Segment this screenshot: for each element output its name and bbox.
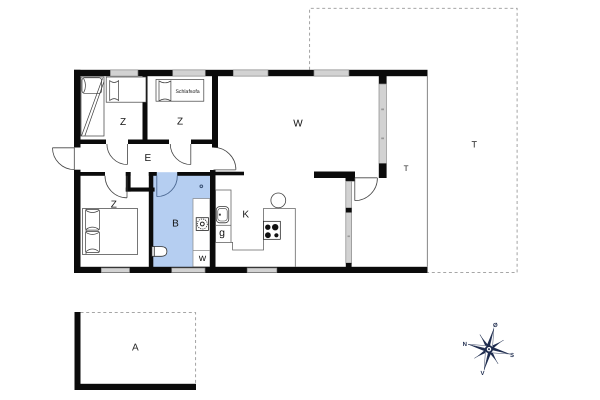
svg-text:Ø: Ø — [493, 322, 498, 329]
svg-text:w: w — [198, 253, 207, 264]
svg-text:W: W — [293, 119, 303, 130]
svg-text:V: V — [480, 370, 484, 377]
svg-text:g: g — [219, 227, 225, 239]
svg-text:S: S — [510, 352, 514, 359]
svg-text:B: B — [172, 218, 179, 229]
svg-text:Z: Z — [111, 199, 117, 210]
svg-text:A: A — [132, 342, 139, 353]
svg-text:N: N — [463, 341, 467, 348]
svg-text:E: E — [144, 153, 151, 164]
svg-text:Schlafsofa: Schlafsofa — [175, 89, 199, 95]
svg-text:K: K — [242, 210, 249, 221]
svg-text:Z: Z — [177, 117, 183, 128]
svg-text:T: T — [404, 164, 409, 173]
svg-text:T: T — [471, 140, 477, 150]
svg-text:Z: Z — [120, 117, 126, 128]
